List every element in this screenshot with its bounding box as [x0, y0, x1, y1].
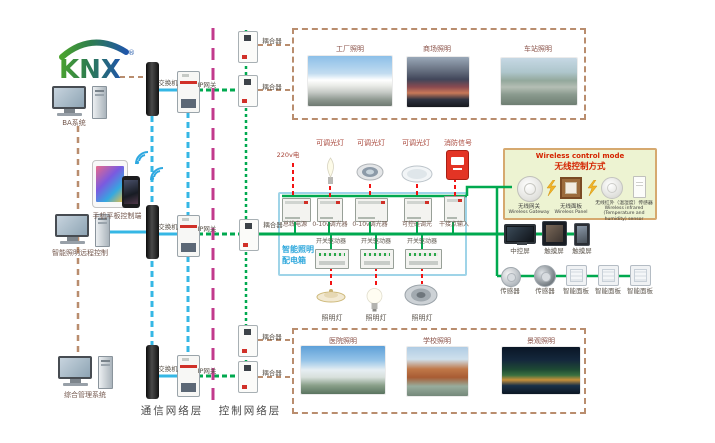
smart-panel-2 [598, 265, 619, 286]
touch-screen-label-1: 触摸屏 [544, 248, 564, 255]
candle-bulb-icon [323, 157, 338, 186]
bulb-icon [366, 287, 383, 313]
dimmable-lamp-label-3: 可调光灯 [402, 139, 430, 147]
switch-driver-3 [405, 249, 442, 269]
fire-signal-label: 消防信号 [444, 139, 472, 147]
wifi-icon [148, 165, 166, 183]
sensor-1 [501, 267, 521, 287]
downlight-icon [356, 162, 384, 184]
smart-panel-3 [630, 265, 651, 286]
driver-label-1: 开关驱动器 [316, 239, 346, 246]
ethernet-switch-1 [146, 62, 159, 116]
driver-label-3: 开关驱动器 [407, 239, 437, 246]
output-lamp-label-2: 照明灯 [366, 314, 387, 322]
central-control-screen [504, 224, 536, 244]
diagram-canvas: 智能照明 配电箱 Wireless control mode 无线控制方式 无线… [0, 0, 715, 443]
coupler-1 [238, 31, 258, 63]
coupler-label-5: 耦合器 [262, 370, 282, 377]
monitor-icon [55, 214, 89, 237]
dimmable-lamp-label-1: 可调光灯 [316, 139, 344, 147]
dimmable-lamp-label-2: 可调光灯 [357, 139, 385, 147]
sensor-label-2: 传感器 [535, 288, 555, 295]
scene-label-factory: 工厂照明 [336, 44, 364, 54]
monitor-icon [58, 356, 92, 379]
touch-screen-label-2: 触摸屏 [572, 248, 592, 255]
bus-power-module [282, 198, 311, 222]
ethernet-switch-3 [146, 345, 159, 399]
scene-photo-hospital [301, 346, 385, 394]
smart-panel-label-3: 智能面板 [627, 288, 653, 295]
scene-photo-landscape [502, 347, 580, 394]
communication-layer-label: 通信网络层 [141, 403, 204, 418]
driver-label-2: 开关驱动器 [361, 239, 391, 246]
registered-mark: ® [128, 49, 135, 57]
switch-label-3: 交换机 [158, 366, 178, 373]
power-input-label: 220v电 [277, 152, 300, 159]
coupler-2 [238, 75, 258, 107]
coupler-label-2: 耦合器 [262, 84, 282, 91]
ip-gateway-3 [177, 355, 200, 397]
switch-label-2: 交换机 [158, 224, 178, 231]
central-screen-label: 中控屏 [510, 248, 530, 255]
computer-management-system [58, 356, 114, 393]
dimmer-module-1 [317, 198, 343, 222]
distribution-box-title-line1: 智能照明 [282, 244, 314, 255]
scene-label-mall: 商场照明 [423, 44, 451, 54]
switch-driver-2 [360, 249, 394, 269]
computer-label-management: 综合管理系统 [64, 391, 106, 399]
coupler-label-1: 耦合器 [262, 38, 282, 45]
sensor-label-1: 传感器 [500, 288, 520, 295]
scene-photo-mall [407, 57, 469, 107]
panel-light-icon [401, 164, 433, 184]
smart-panel-1 [566, 265, 587, 286]
dimmer-module-2 [355, 198, 388, 222]
mobile-label: 手机平板控制端 [93, 212, 142, 220]
switch-driver-1 [315, 249, 349, 269]
coupler-3 [239, 219, 259, 251]
ethernet-switch-2 [146, 205, 159, 259]
coupler-4 [238, 325, 258, 357]
pc-tower-icon [98, 356, 113, 389]
gateway-label-3: IP网关 [198, 368, 217, 375]
distribution-box-title-line2: 配电箱 [282, 255, 306, 266]
fire-alarm-icon [446, 150, 469, 180]
ceiling-lamp-icon [316, 287, 346, 303]
computer-label-ba: BA系统 [62, 119, 86, 127]
scene-label-hospital: 医院照明 [329, 336, 357, 346]
thyristor-dimmer-module [404, 198, 432, 222]
coupler-label-3: 耦合器 [263, 222, 283, 229]
coupler-5 [238, 361, 258, 393]
smart-panel-label-1: 智能面板 [563, 288, 589, 295]
dry-contact-input-module [444, 196, 465, 222]
scene-label-landscape: 景观照明 [527, 336, 555, 346]
coupler-label-4: 耦合器 [262, 334, 282, 341]
smart-panel-label-2: 智能面板 [595, 288, 621, 295]
module-label-dry-contact: 干接点输入 [439, 222, 469, 229]
pc-tower-icon [92, 86, 107, 119]
scene-photo-station [501, 58, 577, 105]
gateway-label-2: IP网关 [198, 226, 217, 233]
scene-photo-factory [308, 56, 392, 106]
scene-label-station: 车站照明 [524, 44, 552, 54]
output-lamp-label-3: 照明灯 [412, 314, 433, 322]
module-label-bus-power: 总线电源 [283, 222, 307, 229]
control-layer-label: 控制网络层 [219, 403, 282, 418]
output-lamp-label-1: 照明灯 [322, 314, 343, 322]
sensor-2 [534, 265, 556, 287]
touch-screen-2 [574, 223, 590, 246]
gateway-label-1: IP网关 [198, 82, 217, 89]
module-label-dimmer1: 0-10v调光器 [312, 222, 347, 229]
highbay-lamp-icon [404, 283, 439, 309]
knx-logo-text: KNX [59, 55, 121, 83]
switch-label-1: 交换机 [158, 80, 178, 87]
knx-logo: KNX ® [50, 33, 140, 87]
module-label-dimmer2: 0-10v调光器 [352, 222, 387, 229]
phone-icon [122, 176, 140, 208]
scene-photo-school [407, 347, 468, 396]
monitor-icon [52, 86, 86, 109]
module-label-thyristor: 可控硅调光 [402, 222, 432, 229]
touch-screen-1 [542, 221, 567, 246]
computer-label-remote: 智能照明远程控制 [52, 249, 108, 257]
ip-gateway-2 [177, 215, 200, 257]
ip-gateway-1 [177, 71, 200, 113]
scene-label-school: 学校照明 [423, 336, 451, 346]
computer-ba-system [52, 86, 108, 123]
